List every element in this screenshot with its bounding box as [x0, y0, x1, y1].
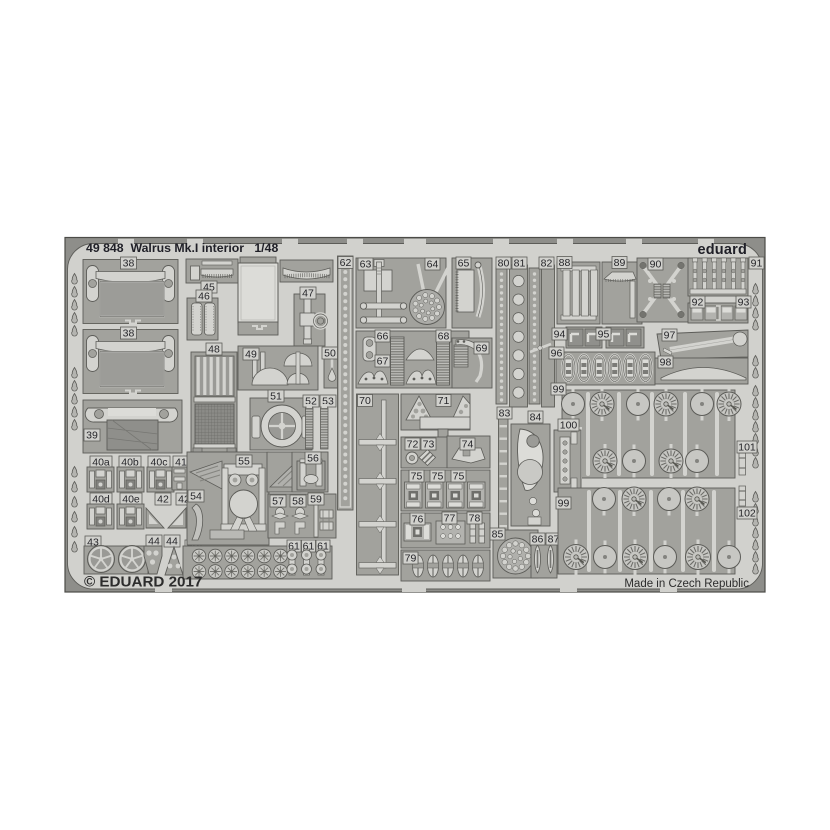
svg-text:39: 39: [86, 430, 98, 442]
svg-text:63: 63: [360, 259, 372, 271]
svg-text:98: 98: [660, 357, 672, 369]
svg-text:99: 99: [558, 498, 570, 510]
svg-text:84: 84: [530, 412, 542, 424]
svg-text:76: 76: [412, 514, 424, 526]
svg-text:42: 42: [157, 494, 169, 506]
svg-text:49: 49: [245, 349, 257, 361]
svg-text:49 848 Walrus Mk.I interior: 49 848 Walrus Mk.I interior 1/48: [86, 241, 278, 255]
svg-text:44: 44: [166, 536, 178, 548]
svg-text:97: 97: [664, 330, 676, 342]
svg-text:86: 86: [532, 534, 544, 546]
svg-text:65: 65: [458, 258, 470, 270]
svg-text:89: 89: [614, 257, 626, 269]
svg-text:50: 50: [324, 348, 336, 360]
svg-text:Made in Czech Republic: Made in Czech Republic: [624, 578, 749, 590]
svg-text:77: 77: [444, 513, 456, 525]
svg-text:eduard: eduard: [697, 242, 747, 258]
svg-text:96: 96: [551, 348, 563, 360]
svg-text:90: 90: [650, 259, 662, 271]
svg-text:38: 38: [123, 328, 135, 340]
svg-text:101: 101: [738, 442, 756, 454]
svg-text:38: 38: [123, 258, 135, 270]
svg-text:85: 85: [492, 529, 504, 541]
svg-text:51: 51: [270, 391, 282, 403]
svg-text:73: 73: [423, 439, 435, 451]
svg-text:© EDUARD 2017: © EDUARD 2017: [84, 574, 202, 591]
svg-text:70: 70: [359, 395, 371, 407]
svg-text:75: 75: [411, 471, 423, 483]
svg-text:92: 92: [692, 297, 704, 309]
svg-text:74: 74: [462, 439, 474, 451]
svg-text:68: 68: [438, 331, 450, 343]
svg-text:80: 80: [498, 258, 510, 270]
svg-text:75: 75: [453, 471, 465, 483]
svg-text:67: 67: [377, 356, 389, 368]
svg-text:56: 56: [307, 453, 319, 465]
svg-text:54: 54: [190, 491, 202, 503]
svg-text:99: 99: [553, 384, 565, 396]
svg-text:102: 102: [738, 508, 756, 520]
svg-text:55: 55: [238, 456, 250, 468]
svg-text:95: 95: [598, 329, 610, 341]
svg-text:69: 69: [476, 343, 488, 355]
svg-text:64: 64: [427, 259, 439, 271]
svg-text:75: 75: [432, 471, 444, 483]
svg-text:71: 71: [438, 395, 450, 407]
svg-text:57: 57: [272, 496, 284, 508]
svg-text:82: 82: [541, 258, 553, 270]
svg-text:62: 62: [340, 257, 352, 269]
svg-text:72: 72: [407, 439, 419, 451]
svg-text:59: 59: [310, 494, 322, 506]
svg-text:66: 66: [377, 331, 389, 343]
svg-text:58: 58: [292, 496, 304, 508]
svg-text:88: 88: [559, 257, 571, 269]
svg-text:83: 83: [499, 408, 511, 420]
svg-text:93: 93: [738, 297, 750, 309]
svg-text:81: 81: [514, 258, 526, 270]
svg-text:78: 78: [469, 513, 481, 525]
svg-text:100: 100: [560, 420, 578, 432]
svg-text:47: 47: [302, 288, 314, 300]
svg-text:94: 94: [554, 329, 566, 341]
svg-text:91: 91: [751, 258, 763, 270]
svg-text:48: 48: [208, 344, 220, 356]
svg-text:46: 46: [198, 291, 210, 303]
svg-text:79: 79: [405, 553, 417, 565]
